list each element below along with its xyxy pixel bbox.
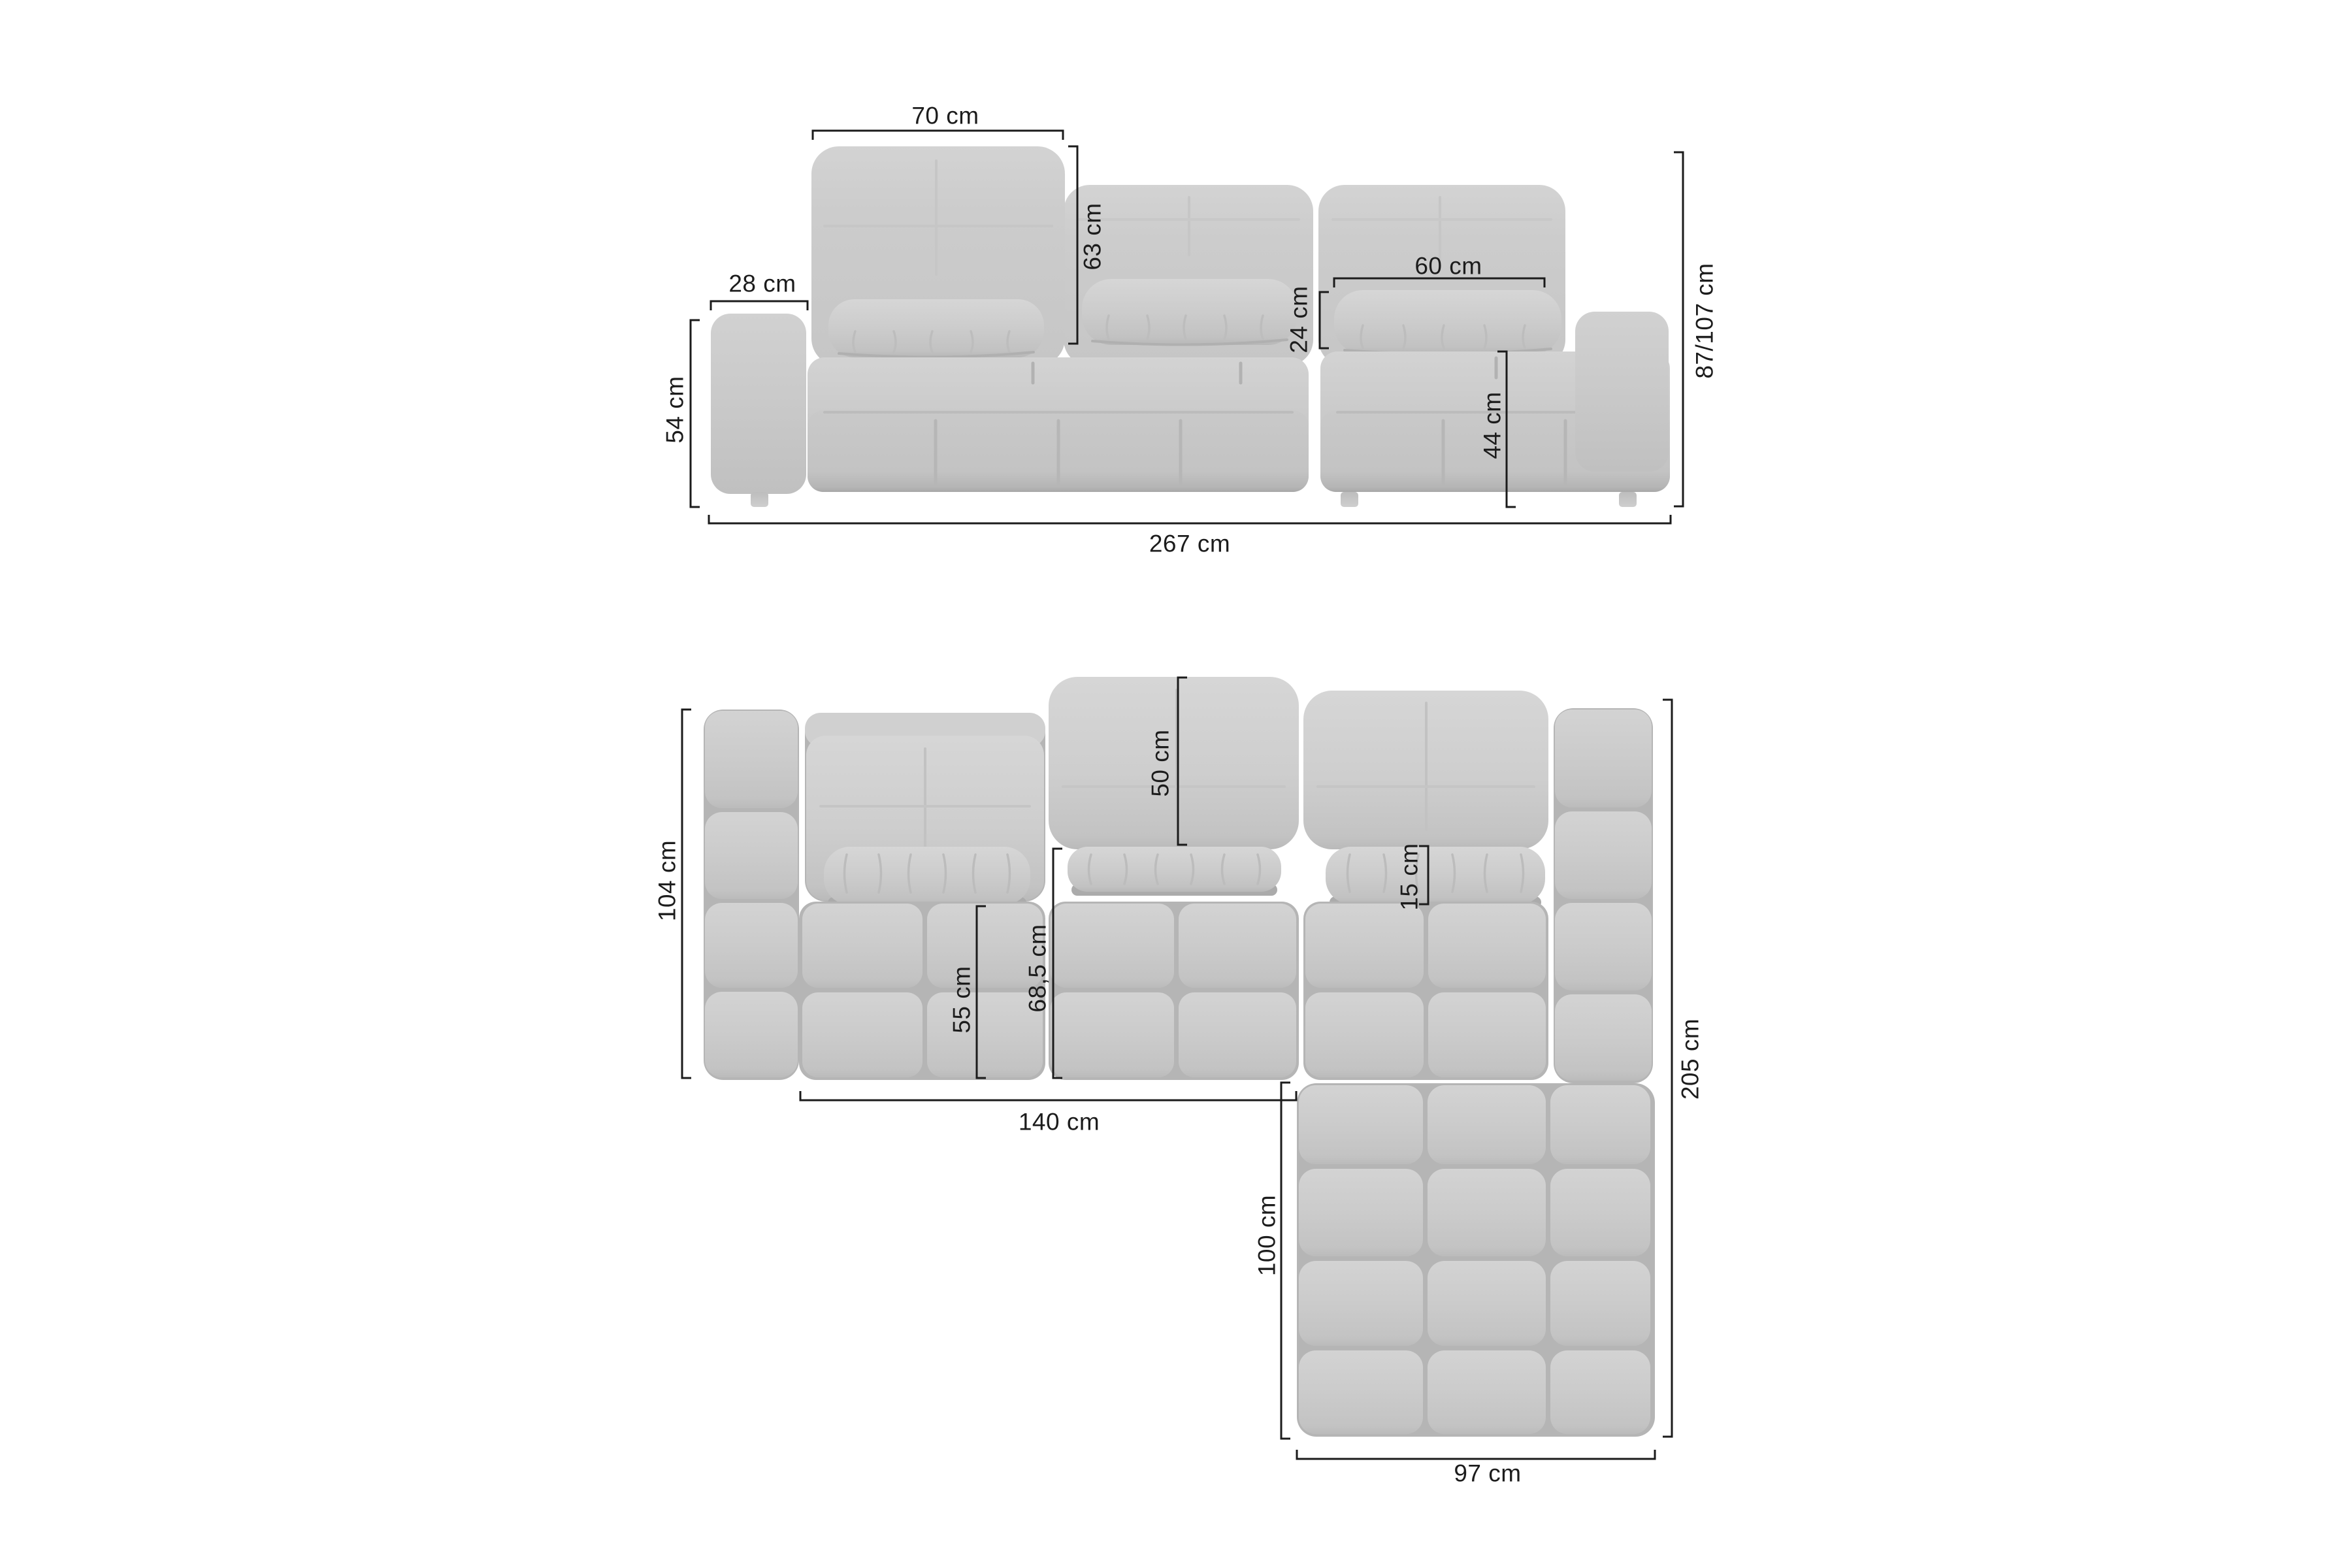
svg-text:63 cm: 63 cm — [1079, 203, 1106, 270]
svg-text:60 cm: 60 cm — [1414, 253, 1482, 280]
svg-text:97 cm: 97 cm — [1454, 1460, 1521, 1487]
svg-text:87/107 cm: 87/107 cm — [1691, 263, 1718, 378]
svg-text:205 cm: 205 cm — [1677, 1019, 1704, 1100]
svg-text:140 cm: 140 cm — [1019, 1109, 1100, 1135]
svg-text:267 cm: 267 cm — [1149, 531, 1230, 557]
svg-text:50 cm: 50 cm — [1147, 729, 1174, 796]
svg-text:28 cm: 28 cm — [728, 270, 796, 297]
svg-text:70 cm: 70 cm — [911, 103, 979, 129]
svg-text:68,5 cm: 68,5 cm — [1024, 924, 1051, 1012]
svg-text:55 cm: 55 cm — [949, 966, 975, 1033]
svg-text:44 cm: 44 cm — [1479, 391, 1506, 459]
svg-text:15 cm: 15 cm — [1396, 843, 1423, 910]
svg-text:54 cm: 54 cm — [662, 376, 689, 443]
svg-text:104 cm: 104 cm — [654, 840, 681, 921]
svg-text:24 cm: 24 cm — [1286, 286, 1313, 353]
svg-text:100 cm: 100 cm — [1254, 1195, 1281, 1276]
